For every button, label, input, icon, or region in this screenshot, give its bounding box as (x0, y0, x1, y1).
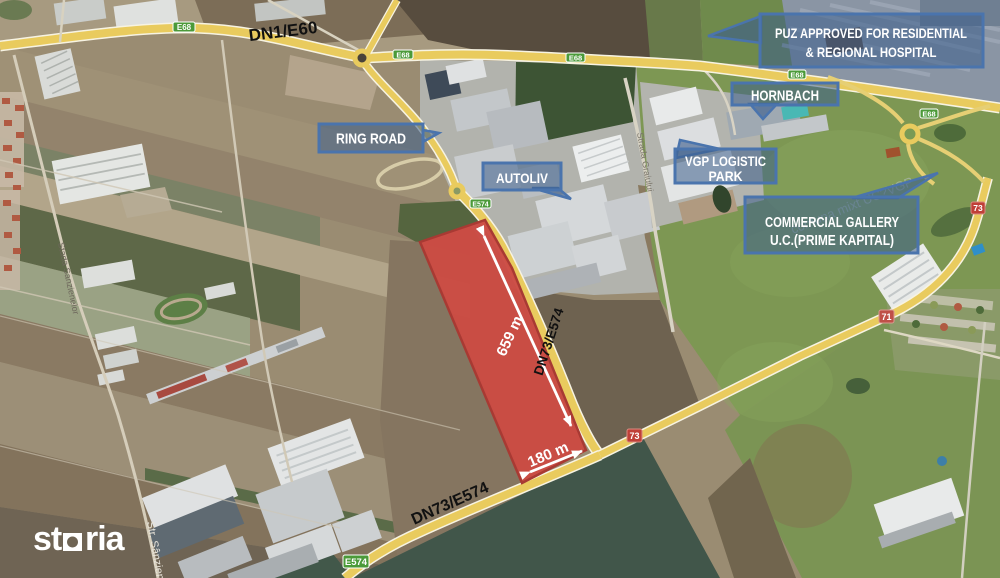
svg-text:HORNBACH: HORNBACH (751, 89, 819, 105)
svg-text:VGP LOGISTIC: VGP LOGISTIC (685, 153, 766, 169)
svg-text:E68: E68 (396, 51, 409, 60)
svg-text:73: 73 (973, 203, 983, 213)
svg-text:ria: ria (85, 520, 126, 558)
svg-text:E68: E68 (790, 71, 803, 80)
svg-text:COMMERCIAL GALLERY: COMMERCIAL GALLERY (765, 215, 899, 231)
svg-text:E68: E68 (569, 54, 582, 63)
svg-text:E68: E68 (177, 23, 192, 32)
svg-text:& REGIONAL HOSPITAL: & REGIONAL HOSPITAL (806, 44, 937, 60)
svg-text:73: 73 (629, 431, 639, 441)
svg-text:PUZ APPROVED FOR RESIDENTIAL: PUZ APPROVED FOR RESIDENTIAL (775, 25, 967, 41)
svg-text:st: st (33, 520, 62, 558)
svg-text:RING ROAD: RING ROAD (336, 131, 406, 148)
svg-text:E574: E574 (472, 202, 488, 209)
svg-text:71: 71 (881, 312, 891, 322)
svg-text:U.C.(PRIME KAPITAL): U.C.(PRIME KAPITAL) (770, 233, 894, 249)
svg-text:E68: E68 (922, 110, 935, 119)
svg-text:AUTOLIV: AUTOLIV (496, 170, 549, 186)
svg-text:PARK: PARK (709, 168, 743, 184)
svg-text:E574: E574 (345, 557, 368, 568)
